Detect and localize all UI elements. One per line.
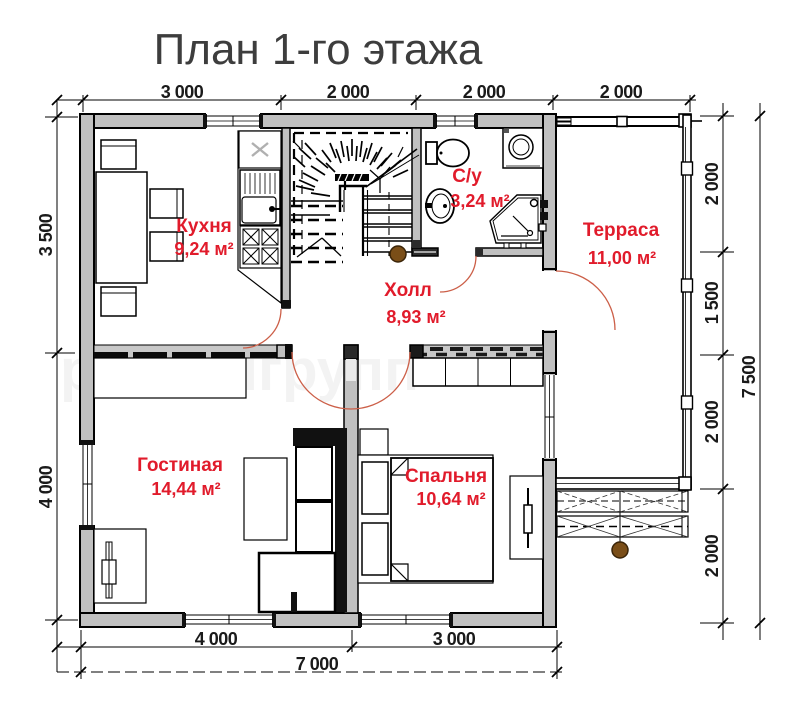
svg-text:8,93 м²: 8,93 м² <box>386 307 445 327</box>
svg-text:7 500: 7 500 <box>739 355 759 398</box>
svg-text:11,00 м²: 11,00 м² <box>588 248 656 268</box>
svg-text:3 000: 3 000 <box>161 82 204 102</box>
svg-text:2 000: 2 000 <box>327 82 370 102</box>
svg-text:3 000: 3 000 <box>433 629 476 649</box>
svg-text:9,24 м²: 9,24 м² <box>174 239 233 259</box>
svg-text:Спальня: Спальня <box>405 466 487 487</box>
svg-text:2 000: 2 000 <box>600 82 643 102</box>
svg-text:Гостиная: Гостиная <box>137 455 223 476</box>
svg-text:10,64 м²: 10,64 м² <box>416 489 485 509</box>
svg-text:Кухня: Кухня <box>176 216 232 237</box>
svg-text:4 000: 4 000 <box>36 465 56 508</box>
svg-text:План 1-го этажа: План 1-го этажа <box>154 25 483 74</box>
svg-text:2 000: 2 000 <box>702 162 722 205</box>
svg-text:7 000: 7 000 <box>296 654 339 674</box>
svg-text:14,44 м²: 14,44 м² <box>151 479 220 499</box>
svg-text:2 000: 2 000 <box>702 534 722 577</box>
svg-text:3 500: 3 500 <box>36 213 56 256</box>
svg-text:С/у: С/у <box>452 166 482 187</box>
svg-text:Терраса: Терраса <box>583 220 660 241</box>
svg-text:2 000: 2 000 <box>702 400 722 443</box>
svg-text:4 000: 4 000 <box>195 629 238 649</box>
svg-text:1 500: 1 500 <box>702 281 722 324</box>
svg-text:3,24 м²: 3,24 м² <box>450 191 509 211</box>
svg-text:Холл: Холл <box>384 280 432 301</box>
svg-text:2 000: 2 000 <box>463 82 506 102</box>
